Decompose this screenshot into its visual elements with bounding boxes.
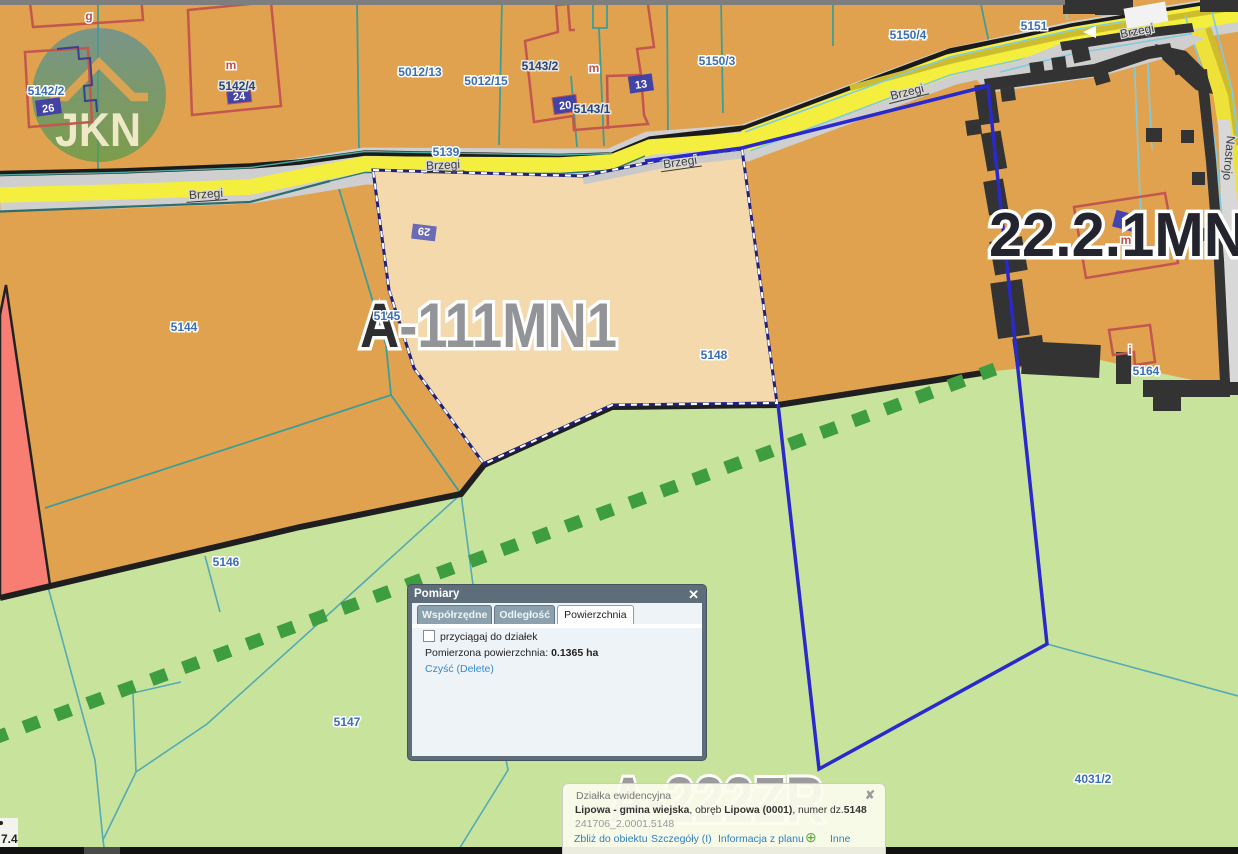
- svg-text:5150/3: 5150/3: [699, 54, 736, 68]
- svg-text:5143/1: 5143/1: [574, 102, 611, 116]
- svg-text:20: 20: [558, 99, 572, 113]
- svg-text:4031/2: 4031/2: [1075, 772, 1112, 786]
- svg-text:22.2.1MNp: 22.2.1MNp: [989, 201, 1238, 270]
- svg-text:5148: 5148: [701, 348, 728, 362]
- svg-text:Brzegi: Brzegi: [426, 157, 461, 173]
- svg-text:5142/2: 5142/2: [28, 84, 65, 98]
- svg-text:m: m: [226, 58, 237, 72]
- svg-text:5146: 5146: [213, 555, 240, 569]
- svg-text:5144: 5144: [171, 320, 198, 334]
- svg-text:26: 26: [41, 102, 55, 116]
- svg-text:5151: 5151: [1021, 19, 1048, 33]
- svg-text:m: m: [589, 61, 600, 75]
- svg-text:5142/4: 5142/4: [219, 79, 256, 93]
- svg-text:5145: 5145: [374, 309, 401, 323]
- svg-text:5012/15: 5012/15: [464, 74, 508, 88]
- svg-text:29: 29: [417, 224, 431, 237]
- svg-text:i: i: [1128, 343, 1131, 357]
- svg-text:13: 13: [634, 78, 648, 92]
- svg-text:JKN: JKN: [55, 103, 141, 156]
- svg-text:5150/4: 5150/4: [890, 28, 927, 42]
- svg-text:m: m: [1121, 233, 1132, 247]
- svg-text:5139: 5139: [433, 145, 460, 159]
- svg-text:A-111MN1: A-111MN1: [360, 291, 617, 361]
- svg-text:g: g: [85, 9, 92, 23]
- svg-text:5012/13: 5012/13: [398, 65, 442, 79]
- svg-text:7.4: 7.4: [1, 832, 18, 846]
- svg-text:5164: 5164: [1133, 364, 1160, 378]
- svg-text:5143/2: 5143/2: [522, 59, 559, 73]
- svg-text:5147: 5147: [334, 715, 361, 729]
